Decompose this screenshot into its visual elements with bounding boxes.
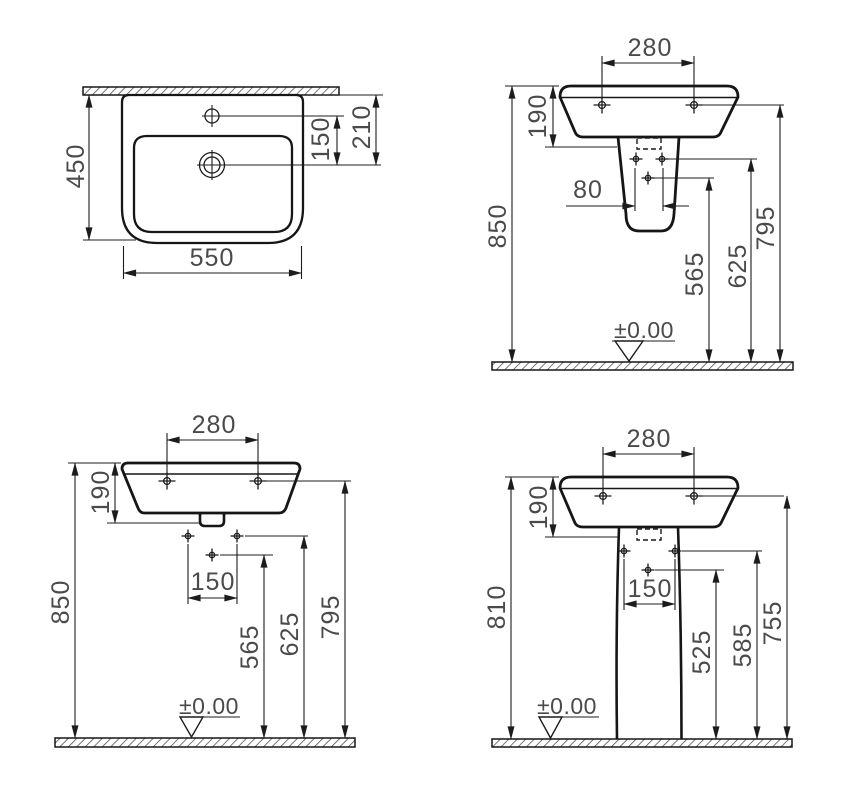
floor-section (55, 738, 355, 747)
dim-label-565: 565 (681, 252, 709, 297)
dim-label-795: 795 (317, 595, 345, 640)
dim-label-fixing-hole-spacing: 150 (628, 575, 673, 603)
basin-outline (122, 463, 300, 513)
dim-label-625: 625 (724, 244, 752, 289)
floor-section (492, 362, 793, 370)
dim-label-basin-height: 190 (525, 485, 553, 530)
dim-label-wall-to-drain: 210 (348, 105, 376, 150)
dim-label-755: 755 (759, 601, 787, 646)
dim-label-850: 850 (47, 580, 75, 625)
dim-label-pedestal-hole-spacing: 80 (573, 176, 603, 204)
dim-label-hole-spacing: 280 (628, 34, 673, 62)
dim-label-850: 850 (484, 204, 512, 249)
washbasin-dimension-drawing: 450 550 150 210 (0, 0, 858, 797)
dim-label-795: 795 (752, 206, 780, 251)
wall-section (83, 87, 339, 95)
dim-label-565: 565 (236, 625, 264, 670)
dim-label-width: 550 (190, 244, 235, 272)
dim-label-625: 625 (276, 612, 304, 657)
dim-tap-to-drain: 150 (307, 116, 337, 165)
dim-label-basin-height: 190 (87, 470, 115, 515)
dim-label-hole-spacing: 280 (627, 425, 672, 453)
dim-label-810: 810 (483, 585, 511, 630)
dim-label-585: 585 (729, 623, 757, 668)
dim-label-basin-height: 190 (524, 94, 552, 139)
datum-label: ±0.00 (537, 693, 597, 719)
technical-drawing-sheet: 450 550 150 210 (0, 0, 858, 797)
basin-bowl (134, 136, 292, 232)
floor-section (492, 739, 792, 747)
datum-label: ±0.00 (179, 693, 239, 719)
basin-outline (560, 477, 738, 527)
dim-label-hole-spacing: 280 (192, 411, 237, 439)
basin-outline (560, 86, 738, 137)
dim-label-fixing-hole-spacing: 150 (191, 568, 236, 596)
dim-label-tap-to-drain: 150 (307, 117, 335, 162)
dim-label-525: 525 (688, 630, 716, 675)
datum-label: ±0.00 (614, 317, 674, 343)
dim-label-depth: 450 (62, 144, 90, 189)
